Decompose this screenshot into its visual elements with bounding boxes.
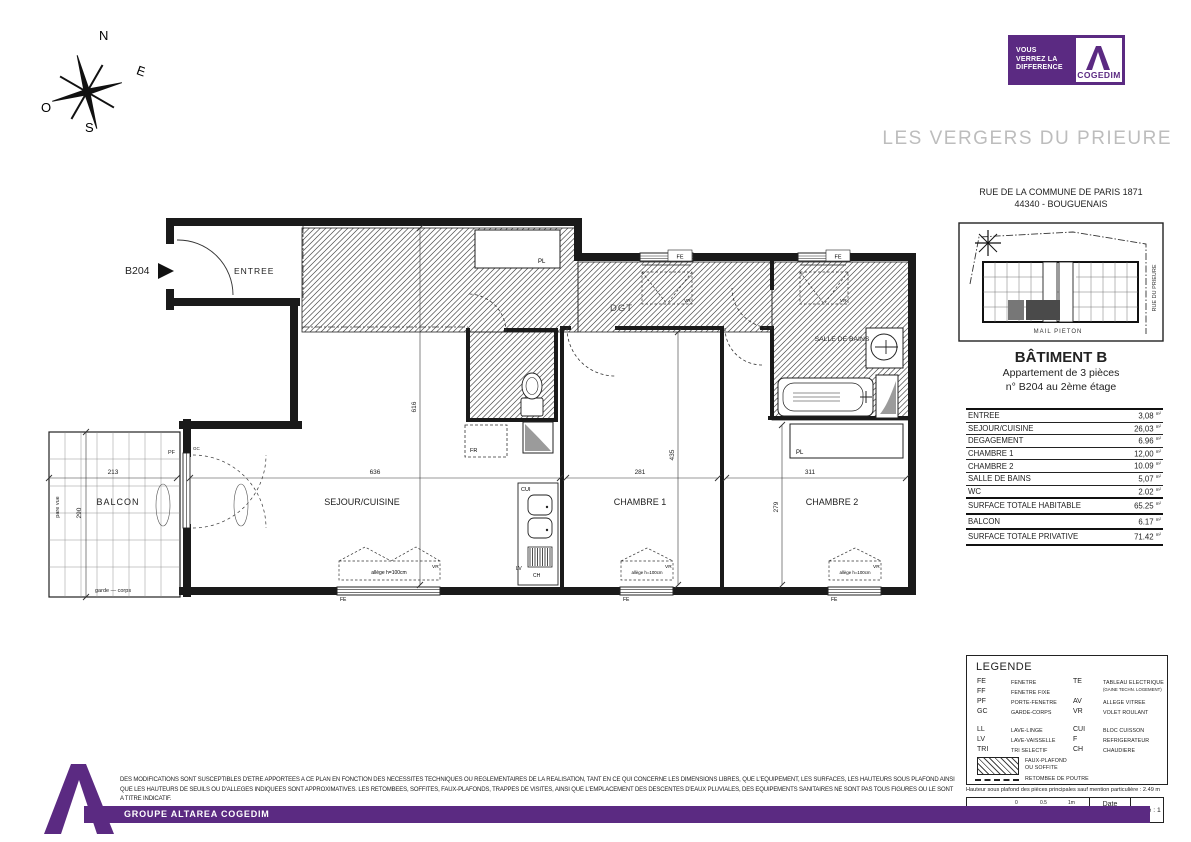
legend-term: LAVE-LINGE — [1011, 728, 1043, 734]
legend-term: BLOC CUISSON — [1103, 728, 1144, 734]
row-label: SURFACE TOTALE PRIVATIVE — [966, 532, 1078, 541]
legend-abbr: LL — [977, 726, 985, 733]
legend-term-sub: (GAINE TECHN. LOGEMENT) — [1103, 687, 1162, 692]
allege-note: allège h=100cm — [839, 570, 870, 575]
building-title-block: BÂTIMENT B Appartement de 3 pièces n° B2… — [955, 349, 1167, 394]
dim-chambre2-h: 279 — [773, 501, 780, 512]
gc-label: GC — [193, 446, 201, 451]
tagline-line1: VOUS — [1016, 47, 1076, 56]
pf-label: PF — [168, 450, 176, 456]
row-label: SEJOUR/CUISINE — [966, 424, 1033, 433]
fe-label: FE — [340, 597, 347, 603]
legend-abbr: LV — [977, 736, 985, 743]
dim-chambre1-h: 435 — [669, 449, 676, 460]
fr-label: FR — [470, 448, 477, 454]
site-street-bottom-label: MAIL PIETON — [1034, 329, 1083, 335]
legend-abbr: AV — [1073, 698, 1082, 705]
garde-corps-note: garde — corps — [95, 588, 131, 594]
dim-balcon-h: 290 — [76, 507, 83, 518]
porte-fenetre-symbol — [183, 453, 190, 528]
vr-label: VR — [432, 564, 439, 570]
apartment-number: n° B204 au 2ème étage — [955, 380, 1167, 394]
entry-door-arc — [177, 240, 233, 295]
row-label: SALLE DE BAINS — [966, 474, 1031, 483]
compass-w-label: O — [41, 100, 51, 115]
fe-label: FE — [676, 255, 683, 261]
dim-chambre2-w: 311 — [805, 469, 816, 476]
closet-chambre2 — [790, 424, 903, 458]
legend-abbr: FE — [977, 678, 986, 685]
row-value: 26,03 m² — [1134, 424, 1163, 434]
pare-vue-note: pare vue — [55, 496, 61, 517]
table-row-total: SURFACE TOTALE PRIVATIVE71.42 m² — [966, 530, 1163, 544]
building-title: BÂTIMENT B — [955, 349, 1167, 366]
table-row: WC2.02 m² — [966, 486, 1163, 500]
table-row: CHAMBRE 210.09 m² — [966, 460, 1163, 473]
footer-disclaimer: DES MODIFICATIONS SONT SUSCEPTIBLES D'ET… — [120, 776, 955, 805]
legend-term: ALLEGE VITREE — [1103, 700, 1146, 706]
sink-basin — [528, 518, 552, 538]
legend-term: GARDE-CORPS — [1011, 710, 1052, 716]
pf-swing-arc — [193, 455, 266, 528]
pf-swing-arc — [193, 455, 266, 528]
fe-label: FE — [623, 597, 630, 603]
cogedim-mark: COGEDIM — [1076, 38, 1122, 82]
legend-title: LEGENDE — [976, 661, 1032, 673]
legend-abbr: TE — [1073, 678, 1082, 685]
table-row: DEGAGEMENT6.96 m² — [966, 435, 1163, 448]
room-label-chambre2: CHAMBRE 2 — [806, 497, 859, 507]
gaine-technique — [523, 422, 553, 453]
cogedim-logo-icon — [1084, 44, 1114, 70]
closet-label: PL — [796, 450, 804, 456]
legend-term: CHAUDIERE — [1103, 748, 1135, 754]
legend-abbr: GC — [977, 708, 988, 715]
altarea-logo-icon — [40, 758, 120, 838]
disclaimer-line3: A TITRE INDICATIF. — [120, 795, 955, 805]
table-row: BALCON6.17 m² — [966, 515, 1163, 531]
legend-term: REFRIGERATEUR — [1103, 738, 1149, 744]
compass-n-label: N — [99, 28, 108, 43]
room-label-entree: ENTREE — [234, 266, 274, 276]
legend-abbr: PF — [977, 698, 986, 705]
table-row: SALLE DE BAINS5,07 m² — [966, 473, 1163, 486]
room-label-sejour: SEJOUR/CUISINE — [324, 497, 400, 507]
dim-sejour-w: 636 — [370, 469, 381, 476]
room-label-chambre1: CHAMBRE 1 — [614, 497, 667, 507]
lv-label: LV — [516, 566, 522, 572]
vr-label: VR — [840, 298, 847, 304]
row-value: 12,00 m² — [1134, 449, 1163, 459]
table-row: ENTREE3,08 m² — [966, 410, 1163, 423]
dim-chambre1-w: 281 — [635, 469, 646, 476]
retombee-swatch — [975, 779, 1019, 781]
allege-note: allège h=100cm — [631, 570, 662, 575]
chambre1-door-arc — [567, 328, 615, 376]
legend-term: TABLEAU ELECTRIQUE — [1103, 680, 1164, 686]
row-value: 65.25 m² — [1134, 501, 1163, 511]
legend-abbr: CUI — [1073, 726, 1085, 733]
tagline-line2: VERREZ LA — [1016, 56, 1076, 65]
closet-label: PL — [538, 259, 546, 265]
legend-term: RETOMBEE DE POUTRE — [1025, 776, 1089, 782]
level-mark — [234, 484, 248, 526]
row-value: 10.09 m² — [1134, 461, 1163, 471]
legend-term: PORTE-FENETRE — [1011, 700, 1057, 706]
plan-sheet: N E O S VOUS VERREZ LA DIFFERENCE COGEDI… — [0, 0, 1191, 842]
legend-abbr: FF — [977, 688, 986, 695]
tagline-line3: DIFFERENCE — [1016, 64, 1076, 73]
fe-label: FE — [831, 597, 838, 603]
unit-arrow-icon — [158, 263, 174, 279]
closet-entree — [475, 230, 560, 268]
site-unit-highlight — [1026, 300, 1060, 320]
site-building-footprint — [983, 262, 1138, 322]
cogedim-logo: VOUS VERREZ LA DIFFERENCE COGEDIM — [1008, 35, 1125, 85]
address-line2: 44340 - BOUGUENAIS — [955, 199, 1167, 211]
footer-band: GROUPE ALTAREA COGEDIM — [84, 806, 1150, 823]
apartment-type: Appartement de 3 pièces — [955, 366, 1167, 380]
compass-s-label: S — [85, 120, 94, 134]
legend-term: FAUX-PLAFOND — [1025, 758, 1067, 764]
allege-note: allège h=100cm — [371, 570, 406, 576]
legend-abbr: CH — [1073, 746, 1083, 753]
sink-basin — [528, 495, 552, 515]
cogedim-brand-label: COGEDIM — [1077, 70, 1120, 82]
room-label-sdb: SALLE DE BAINS — [815, 336, 870, 343]
row-label: WC — [966, 487, 981, 496]
legend-term: FENETRE FIXE — [1011, 690, 1050, 696]
chambre2-door-arc — [725, 328, 762, 365]
legend-term: FENETRE — [1011, 680, 1036, 686]
row-label: DEGAGEMENT — [966, 436, 1023, 445]
legend-term: OU SOFFITE — [1025, 765, 1058, 771]
kitchen-block: CUI LV CH FR — [465, 422, 558, 585]
address-line1: RUE DE LA COMMUNE DE PARIS 1871 — [955, 187, 1167, 199]
row-label: ENTREE — [966, 411, 1000, 420]
ceiling-height-note: Hauteur sous plafond des pièces principa… — [966, 787, 1171, 793]
project-address: RUE DE LA COMMUNE DE PARIS 1871 44340 - … — [955, 187, 1167, 210]
project-title: LES VERGERS DU PRIEURE — [700, 128, 1172, 150]
table-row-total: SURFACE TOTALE HABITABLE65.25 m² — [966, 499, 1163, 515]
room-label-dgt: DGT — [610, 303, 633, 314]
row-value: 6.96 m² — [1138, 436, 1163, 446]
surface-table: ENTREE3,08 m² SEJOUR/CUISINE26,03 m² DEG… — [966, 408, 1163, 546]
row-value: 5,07 m² — [1138, 474, 1163, 484]
table-row: SEJOUR/CUISINE26,03 m² — [966, 423, 1163, 436]
vr-label: VR — [665, 564, 672, 570]
toilet-fixture — [521, 373, 543, 416]
ch-label: CH — [533, 573, 541, 579]
site-key-plan: MAIL PIETON RUE DU PRIEURE — [958, 222, 1164, 342]
row-value: 3,08 m² — [1138, 411, 1163, 421]
table-row: CHAMBRE 112,00 m² — [966, 448, 1163, 461]
cui-label: CUI — [521, 487, 531, 493]
legend-term: TRI SELECTIF — [1011, 748, 1048, 754]
legend-abbr: TRI — [977, 746, 988, 753]
floor-plan: PL — [40, 195, 920, 605]
row-label: CHAMBRE 1 — [966, 449, 1014, 458]
balcony — [49, 432, 180, 597]
row-label: CHAMBRE 2 — [966, 462, 1014, 471]
row-value: 71.42 m² — [1134, 532, 1163, 542]
disclaimer-line1: DES MODIFICATIONS SONT SUSCEPTIBLES D'ET… — [120, 776, 955, 786]
dim-balcon-w: 213 — [108, 469, 119, 476]
legend-abbr: F — [1073, 736, 1077, 743]
compass-rose-icon: N E O S — [35, 22, 145, 134]
dim-left-h: 616 — [411, 401, 418, 412]
row-value: 6.17 m² — [1138, 517, 1163, 527]
vr-label: VR — [873, 564, 880, 570]
fe-label: FE — [834, 255, 841, 261]
vr-label: VR — [684, 298, 691, 304]
room-label-balcon: BALCON — [96, 497, 139, 507]
compass-e-label: E — [135, 62, 145, 79]
legend-term: VOLET ROULANT — [1103, 710, 1148, 716]
faux-plafond-swatch — [977, 757, 1019, 775]
legend-box: LEGENDE FEFENETRE FFFENETRE FIXE PFPORTE… — [966, 655, 1168, 785]
gaine-technique — [876, 375, 898, 418]
row-label: BALCON — [966, 517, 1000, 526]
row-label: SURFACE TOTALE HABITABLE — [966, 501, 1081, 510]
legend-abbr: VR — [1073, 708, 1083, 715]
site-street-right-label: RUE DU PRIEURE — [1152, 264, 1158, 311]
site-unit-highlight — [1008, 300, 1024, 320]
legend-term: LAVE-VAISSELLE — [1011, 738, 1055, 744]
unit-id-label: B204 — [125, 265, 150, 277]
disclaimer-line2: QUE LES HAUTEURS DE SEUILS OU D'ALLEGES … — [120, 786, 955, 796]
row-value: 2.02 m² — [1138, 487, 1163, 497]
cogedim-tagline: VOUS VERREZ LA DIFFERENCE — [1011, 38, 1076, 82]
